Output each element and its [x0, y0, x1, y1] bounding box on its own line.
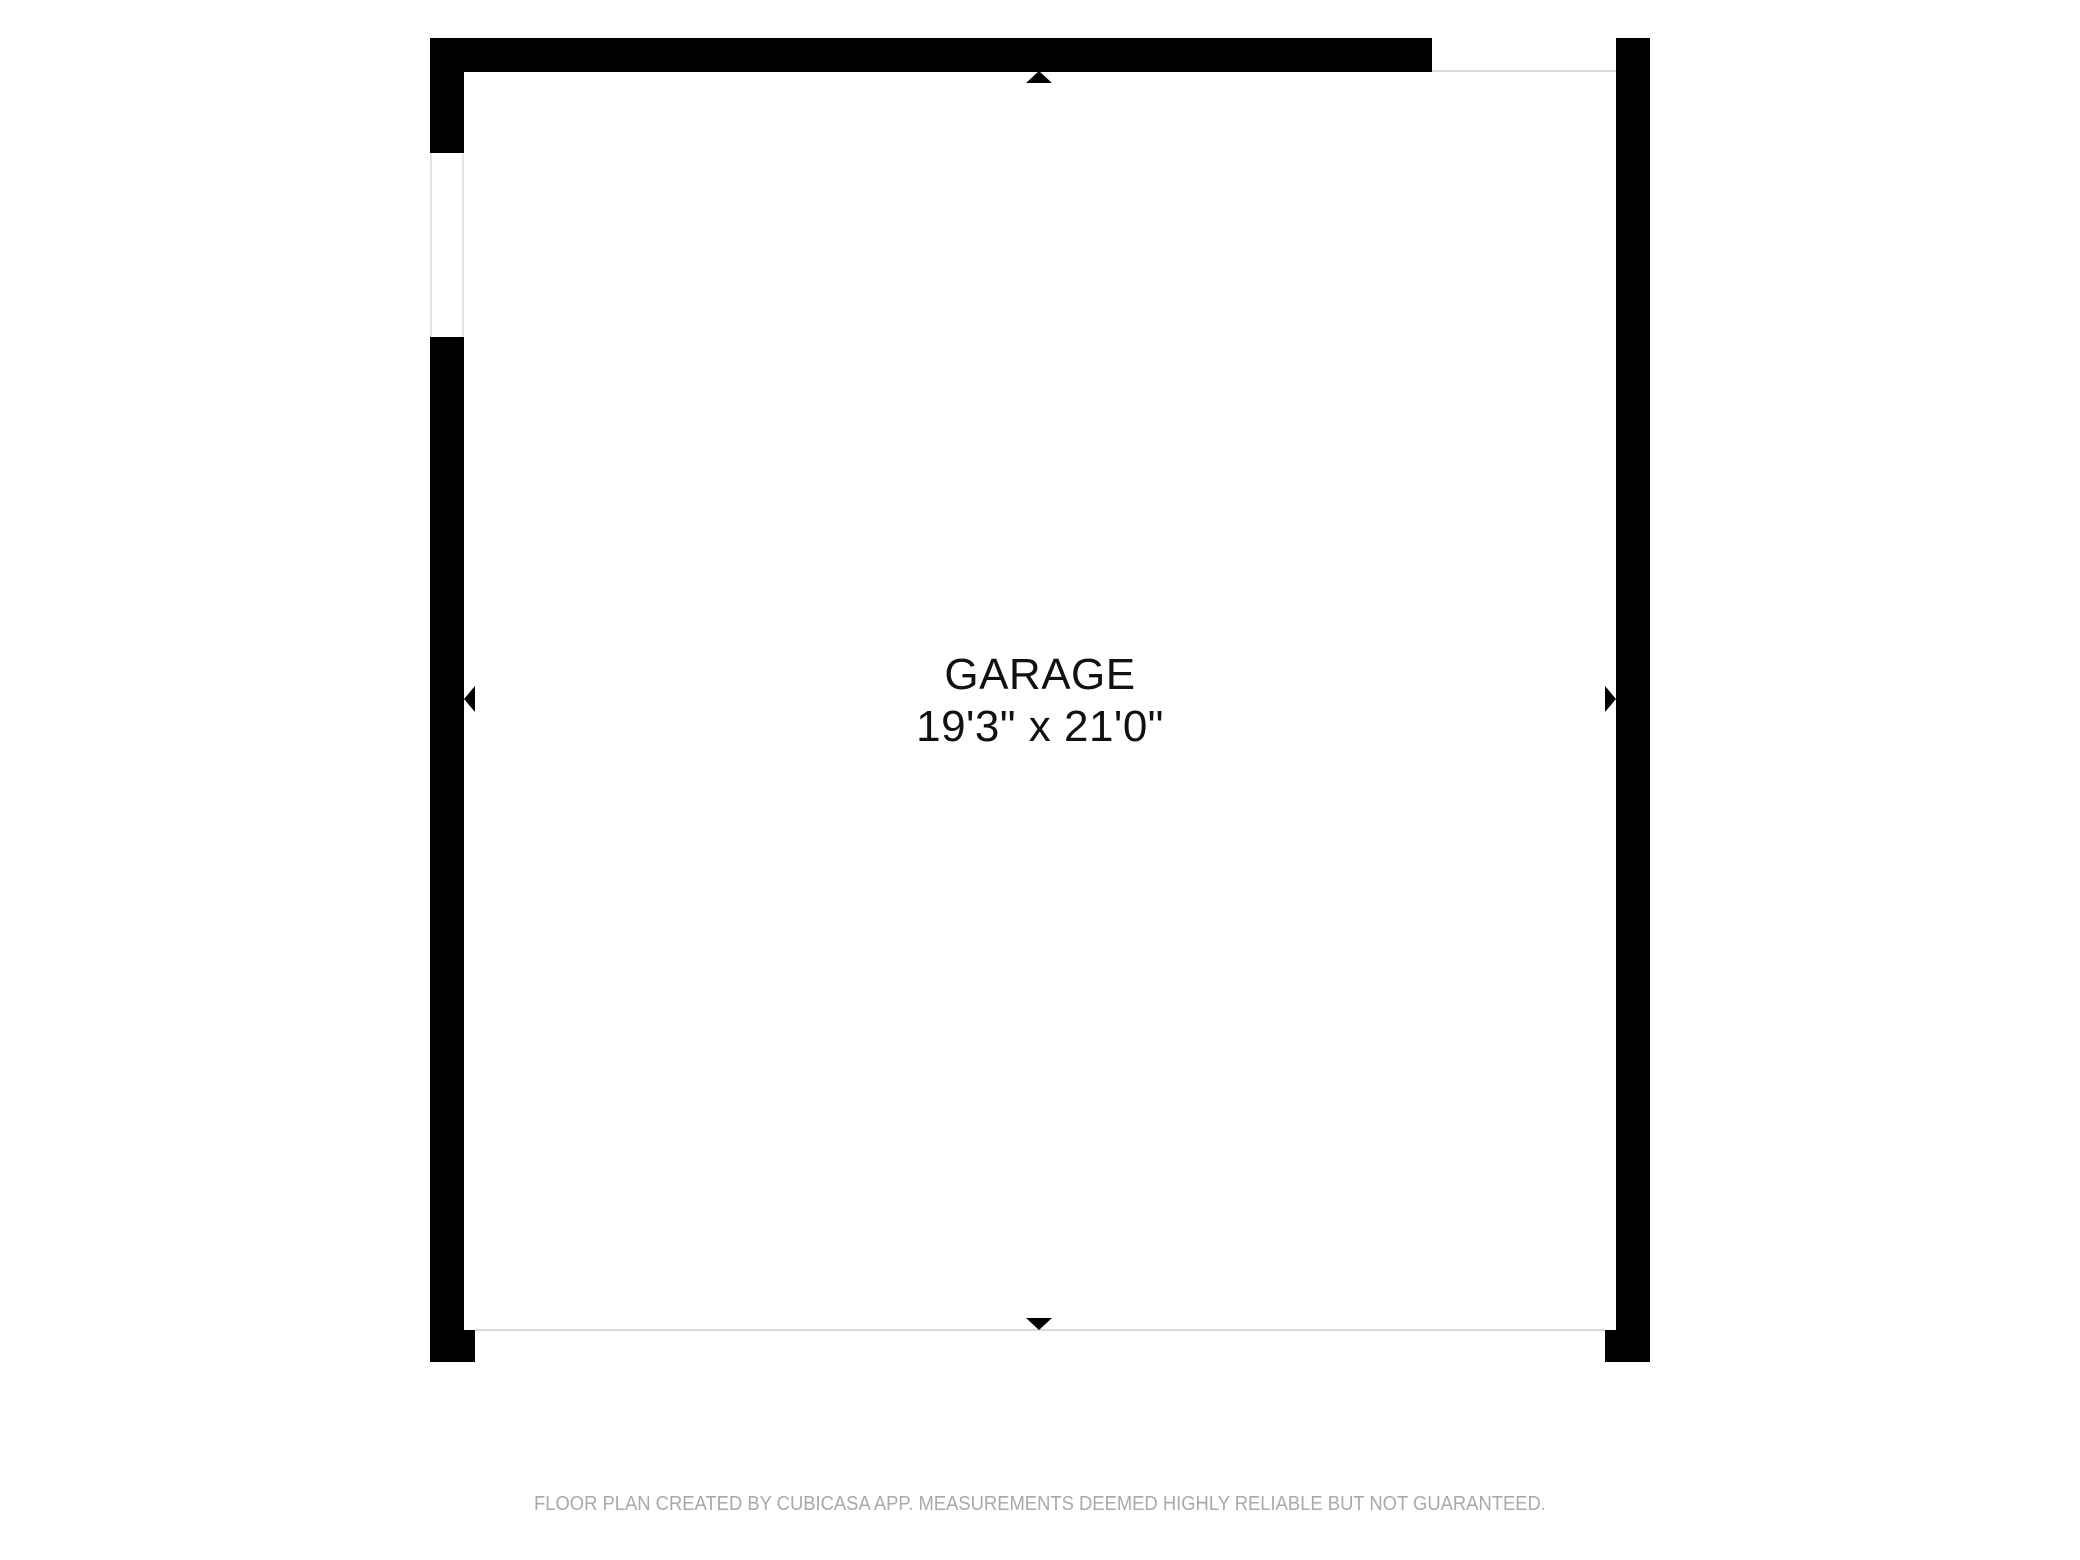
room-label: GARAGE 19'3" x 21'0": [464, 72, 1616, 1330]
garage-floor-plan: GARAGE 19'3" x 21'0": [0, 0, 2080, 1560]
room-name: GARAGE: [944, 649, 1135, 701]
wall-right: [1616, 38, 1650, 1362]
wall-top: [430, 38, 1432, 72]
wall-corner-bottom-left: [430, 1330, 475, 1362]
wall-left-lower: [430, 337, 464, 1362]
wall-corner-bottom-right: [1605, 1330, 1650, 1362]
room-dimensions: 19'3" x 21'0": [916, 701, 1164, 753]
footer-disclaimer: FLOOR PLAN CREATED BY CUBICASA APP. MEAS…: [534, 1492, 1546, 1516]
floor-plan-canvas: GARAGE 19'3" x 21'0" FLOOR PLAN CREATED …: [0, 0, 2080, 1560]
wall-left-upper: [430, 38, 464, 153]
footer: FLOOR PLAN CREATED BY CUBICASA APP. MEAS…: [0, 1492, 2080, 1516]
window-opening-outer-line: [430, 153, 432, 337]
